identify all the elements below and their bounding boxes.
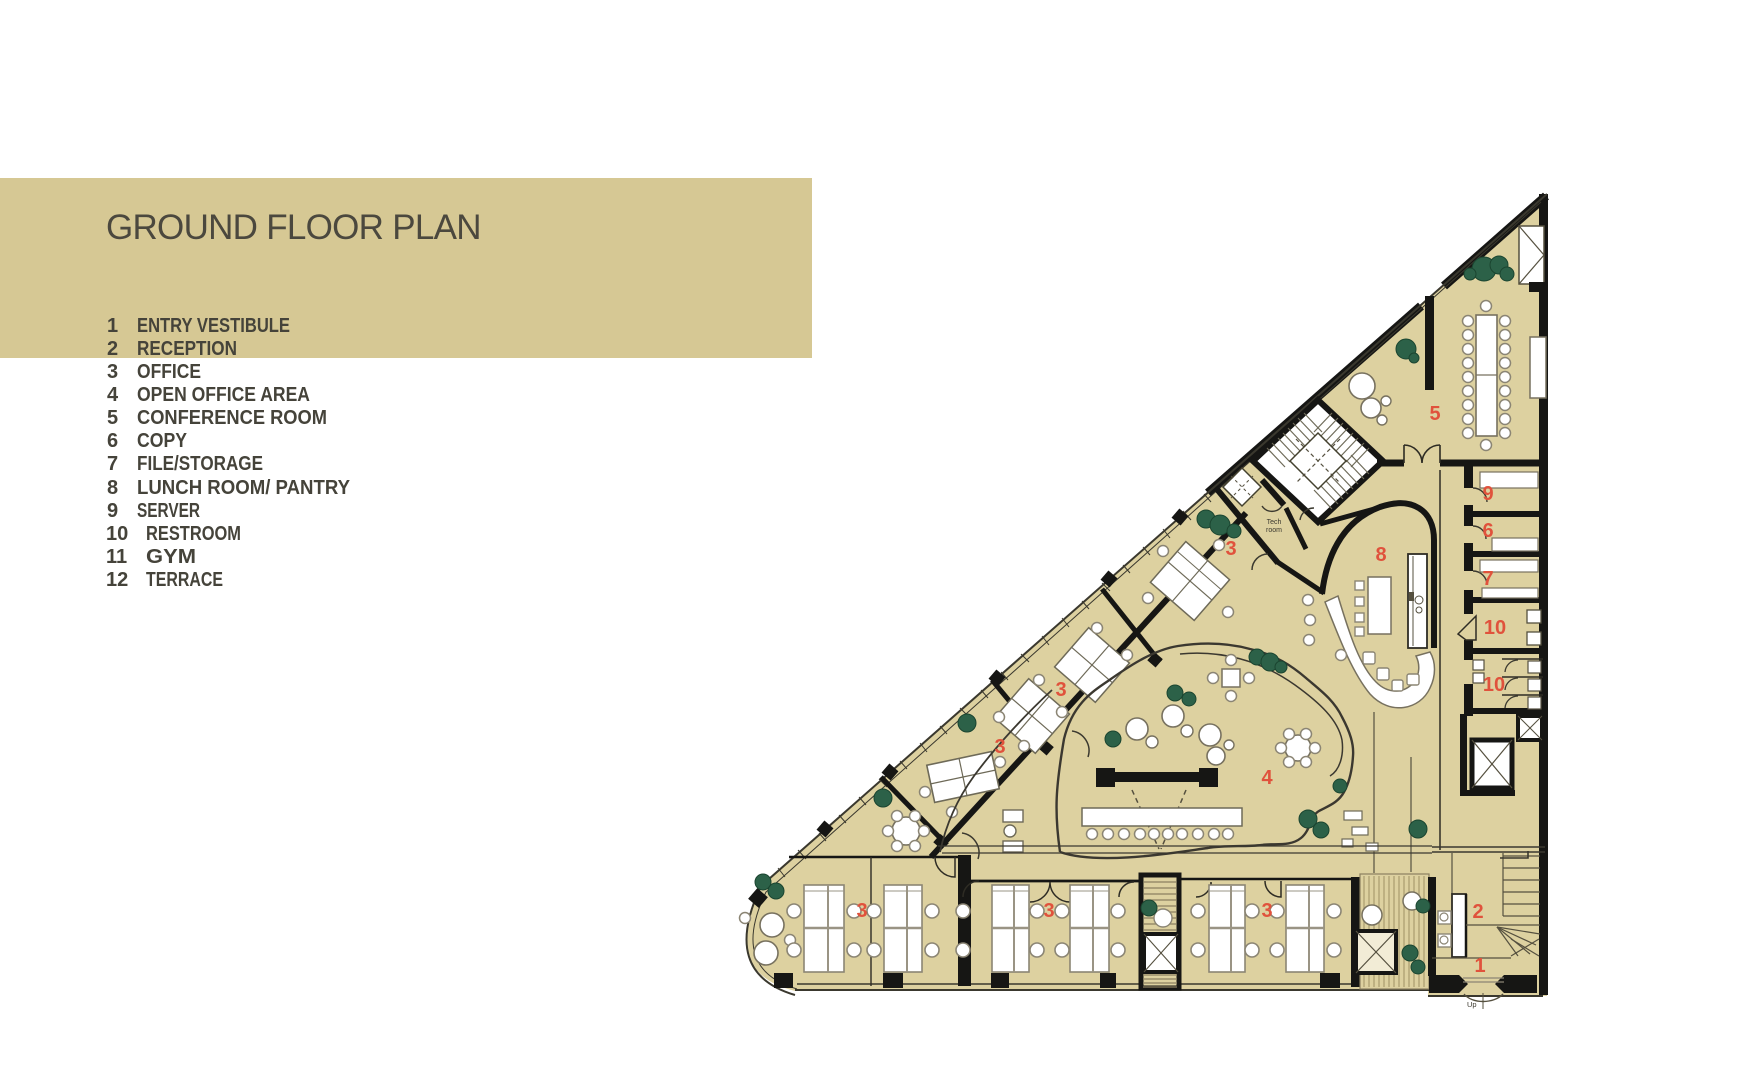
svg-text:CONFERENCE ROOM: CONFERENCE ROOM <box>137 407 327 429</box>
svg-text:room: room <box>1266 527 1282 534</box>
svg-text:RESTROOM: RESTROOM <box>146 523 241 545</box>
svg-text:10: 10 <box>1483 674 1505 696</box>
svg-text:9: 9 <box>107 500 118 522</box>
svg-text:3: 3 <box>107 361 118 383</box>
svg-text:RECEPTION: RECEPTION <box>137 338 237 360</box>
svg-text:5: 5 <box>1429 403 1440 425</box>
svg-text:Tech: Tech <box>1267 519 1282 526</box>
svg-text:3: 3 <box>1043 900 1054 922</box>
svg-text:OFFICE: OFFICE <box>137 361 201 383</box>
svg-text:10: 10 <box>106 523 128 545</box>
svg-text:11: 11 <box>106 546 127 568</box>
svg-text:3: 3 <box>1261 900 1272 922</box>
svg-text:1: 1 <box>1474 955 1485 977</box>
svg-text:3: 3 <box>994 736 1005 758</box>
svg-text:3: 3 <box>1055 679 1066 701</box>
svg-text:8: 8 <box>1375 544 1386 566</box>
svg-text:10: 10 <box>1484 617 1506 639</box>
svg-text:2: 2 <box>1472 901 1483 923</box>
svg-text:4: 4 <box>1261 767 1273 789</box>
svg-text:SERVER: SERVER <box>137 500 200 522</box>
svg-text:7: 7 <box>107 453 118 475</box>
svg-text:GROUND FLOOR PLAN: GROUND FLOOR PLAN <box>106 208 484 247</box>
svg-text:1: 1 <box>107 315 118 337</box>
svg-text:6: 6 <box>107 430 118 452</box>
svg-text:2: 2 <box>107 338 118 360</box>
svg-text:OPEN OFFICE AREA: OPEN OFFICE AREA <box>137 384 310 406</box>
svg-text:5: 5 <box>107 407 118 429</box>
svg-text:ENTRY VESTIBULE: ENTRY VESTIBULE <box>137 315 290 337</box>
svg-text:7: 7 <box>1482 568 1493 590</box>
svg-text:Up: Up <box>1467 1000 1477 1009</box>
svg-text:8: 8 <box>107 477 118 499</box>
svg-text:GYM: GYM <box>146 546 196 568</box>
svg-text:4: 4 <box>107 384 119 406</box>
svg-text:TERRACE: TERRACE <box>146 569 223 591</box>
svg-text:3: 3 <box>856 900 867 922</box>
svg-text:FILE/STORAGE: FILE/STORAGE <box>137 453 263 475</box>
svg-text:LUNCH ROOM/ PANTRY: LUNCH ROOM/ PANTRY <box>137 477 351 499</box>
svg-text:3: 3 <box>1225 538 1236 560</box>
svg-text:9: 9 <box>1482 483 1493 505</box>
svg-text:6: 6 <box>1482 520 1493 542</box>
svg-text:12: 12 <box>106 569 128 591</box>
svg-text:COPY: COPY <box>137 430 188 452</box>
